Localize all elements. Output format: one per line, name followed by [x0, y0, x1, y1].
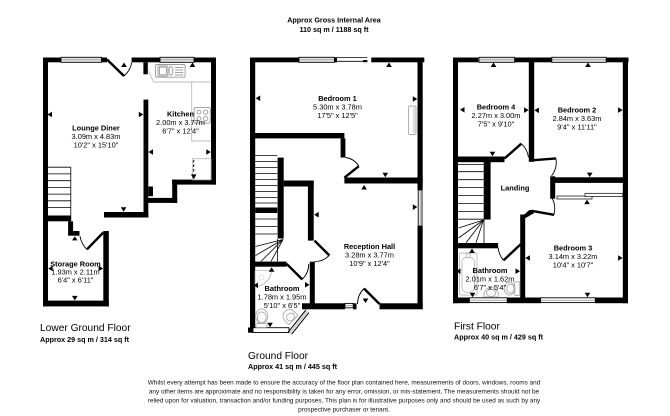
svg-text:any other items are approximat: any other items are approximate and no r…	[149, 389, 540, 396]
svg-text:Approx 29 sq m / 314 sq ft: Approx 29 sq m / 314 sq ft	[40, 335, 130, 344]
svg-text:6'4" x 6'11": 6'4" x 6'11"	[58, 276, 94, 285]
svg-text:Approx Gross Internal Area: Approx Gross Internal Area	[287, 16, 382, 25]
svg-text:relied upon for valuation, tra: relied upon for valuation, transaction a…	[148, 398, 541, 405]
svg-text:First Floor: First Floor	[454, 322, 500, 333]
svg-text:7'5" x 9'10": 7'5" x 9'10"	[478, 120, 515, 129]
svg-text:5'10" x 6'5": 5'10" x 6'5"	[264, 301, 301, 310]
svg-text:Whilst every attempt has been: Whilst every attempt has been made to en…	[148, 380, 541, 387]
svg-text:10'9" x 12'4": 10'9" x 12'4"	[349, 259, 390, 268]
svg-text:Approx 40 sq m / 429 sq ft: Approx 40 sq m / 429 sq ft	[454, 333, 544, 342]
svg-text:6'7" x 5'4": 6'7" x 5'4"	[474, 283, 507, 292]
svg-text:110 sq m / 1188 sq ft: 110 sq m / 1188 sq ft	[299, 25, 369, 34]
svg-text:10'4" x 10'7": 10'4" x 10'7"	[553, 261, 594, 270]
svg-text:10'2" x 15'10": 10'2" x 15'10"	[74, 141, 119, 150]
svg-text:9'4" x 11'11": 9'4" x 11'11"	[557, 123, 597, 132]
svg-text:Landing: Landing	[501, 184, 530, 193]
svg-text:6'7" x 12'4": 6'7" x 12'4"	[162, 127, 199, 136]
svg-text:17'5" x 12'5": 17'5" x 12'5"	[317, 111, 358, 120]
svg-text:Ground Floor: Ground Floor	[248, 351, 309, 362]
svg-text:prospective purchaser or tenan: prospective purchaser or tenant.	[298, 407, 390, 414]
svg-text:Approx 41 sq m / 445 sq ft: Approx 41 sq m / 445 sq ft	[248, 362, 338, 371]
svg-text:Lower Ground Floor: Lower Ground Floor	[40, 323, 131, 334]
